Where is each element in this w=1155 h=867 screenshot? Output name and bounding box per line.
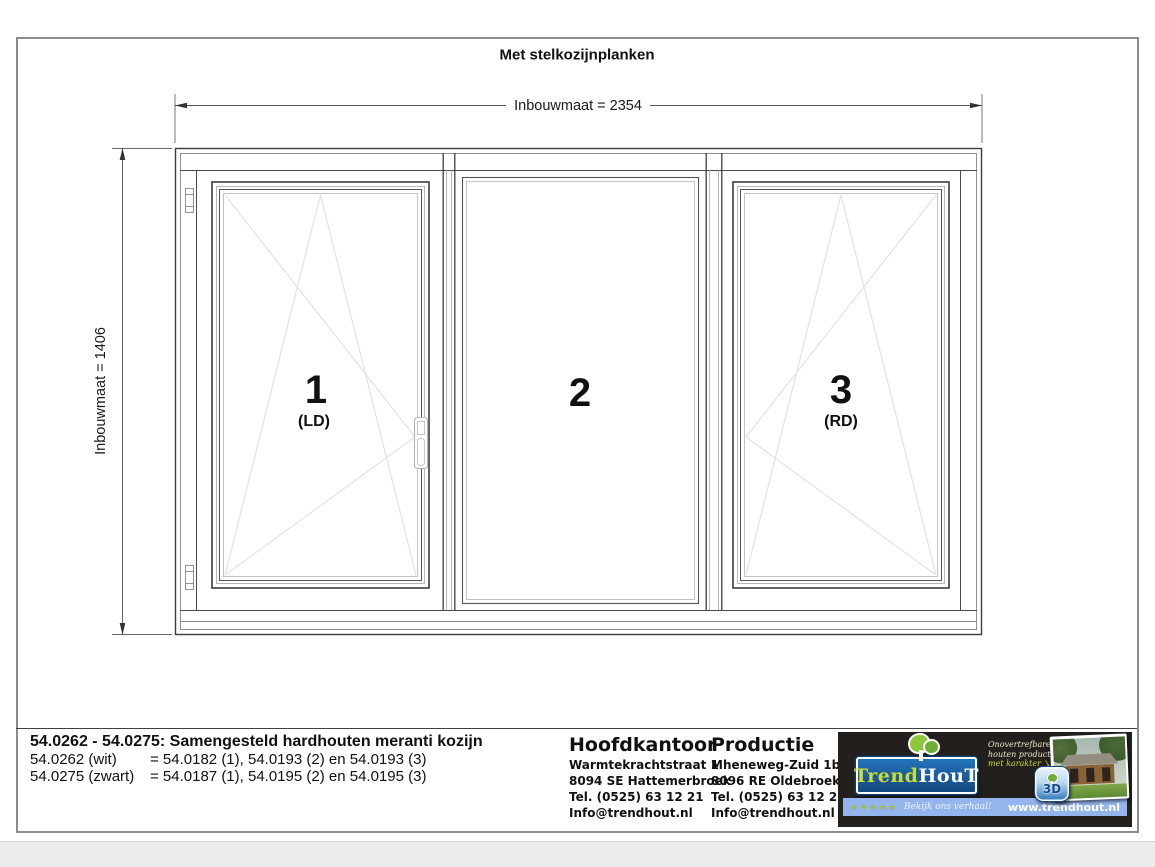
panel-3-number: 3	[830, 370, 852, 410]
panel-1-direction: (LD)	[298, 413, 330, 431]
panel-1-hinge-bottom	[186, 566, 194, 590]
variant-row: 54.0262 (wit) = 54.0182 (1), 54.0193 (2)…	[30, 751, 483, 769]
panel-1-number: 1	[305, 370, 327, 410]
review-text: Bekijk ons verhaal!	[904, 802, 992, 812]
mullion-2-3	[706, 153, 722, 610]
productie-block: Productie Mheneweg-Zuid 1b 8096 RE Oldeb…	[711, 733, 846, 821]
website-url: www.trendhout.nl	[1008, 801, 1120, 814]
brand-hout: HouT	[918, 765, 979, 787]
photo-cabin-walls	[1065, 763, 1114, 784]
panel-3-direction: (RD)	[824, 413, 858, 431]
productie-title: Productie	[711, 733, 846, 757]
variant-composition: = 54.0182 (1), 54.0193 (2) en 54.0193 (3…	[150, 751, 426, 769]
hoofdkantoor-phone: Tel. (0525) 63 12 21	[569, 789, 731, 805]
bottom-strip	[0, 841, 1155, 867]
variant-code: 54.0275 (zwart)	[30, 768, 150, 786]
brand-trend: Trend	[854, 765, 918, 787]
mullion-1-2	[443, 153, 455, 610]
productie-street: Mheneweg-Zuid 1b	[711, 757, 846, 773]
hoofdkantoor-street: Warmtekrachtstraat 1	[569, 757, 731, 773]
hoofdkantoor-block: Hoofdkantoor Warmtekrachtstraat 1 8094 S…	[569, 733, 731, 821]
badge-3d-text: 3D	[1043, 783, 1061, 795]
tree-icon	[900, 732, 946, 762]
variant-code: 54.0262 (wit)	[30, 751, 150, 769]
variant-row: 54.0275 (zwart) = 54.0187 (1), 54.0195 (…	[30, 768, 483, 786]
review-bar: ★★★★★ Bekijk ons verhaal! www.trendhout.…	[843, 798, 1127, 816]
productie-email: Info@trendhout.nl	[711, 805, 846, 821]
panel-1-hinge-top	[186, 189, 194, 213]
productie-city: 8096 RE Oldebroek	[711, 773, 846, 789]
hoofdkantoor-email: Info@trendhout.nl	[569, 805, 731, 821]
badge-tree-icon	[1047, 773, 1058, 783]
trendhout-logo: TrendHouT	[856, 757, 977, 794]
hoofdkantoor-title: Hoofdkantoor	[569, 733, 731, 757]
product-description-block: 54.0262 - 54.0275: Samengesteld hardhout…	[30, 733, 483, 786]
trendhout-logo-panel: TrendHouT Onovertrefbare houten producte…	[838, 732, 1132, 827]
hoofdkantoor-city: 8094 SE Hattemerbroek	[569, 773, 731, 789]
footer-divider	[16, 728, 1137, 729]
panel-1-handle	[415, 418, 428, 469]
productie-phone: Tel. (0525) 63 12 21	[711, 789, 846, 805]
3d-badge-icon: 3D	[1034, 766, 1070, 802]
panel-2-number: 2	[569, 373, 591, 413]
dimension-height-lines	[112, 148, 172, 635]
product-title: 54.0262 - 54.0275: Samengesteld hardhout…	[30, 733, 483, 751]
variant-composition: = 54.0187 (1), 54.0195 (2) en 54.0195 (3…	[150, 768, 426, 786]
star-rating-icons: ★★★★★	[850, 803, 898, 812]
dimension-width-label: Inbouwmaat = 2354	[506, 98, 650, 114]
dimension-height-label: Inbouwmaat = 1406	[93, 319, 109, 463]
